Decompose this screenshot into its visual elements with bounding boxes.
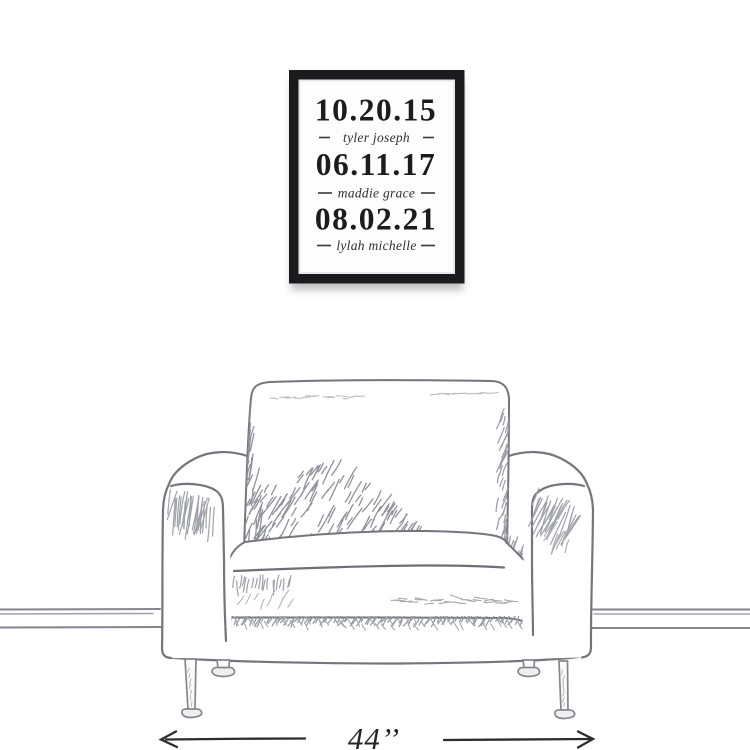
svg-text:08.02.21: 08.02.21 [315,202,437,237]
svg-text:lylah michelle: lylah michelle [336,238,416,253]
svg-text:06.11.17: 06.11.17 [316,147,437,182]
svg-text:44’’: 44’’ [348,721,400,750]
svg-text:maddie grace: maddie grace [338,186,415,201]
svg-text:tyler joseph: tyler joseph [343,130,410,145]
svg-text:10.20.15: 10.20.15 [315,93,437,128]
